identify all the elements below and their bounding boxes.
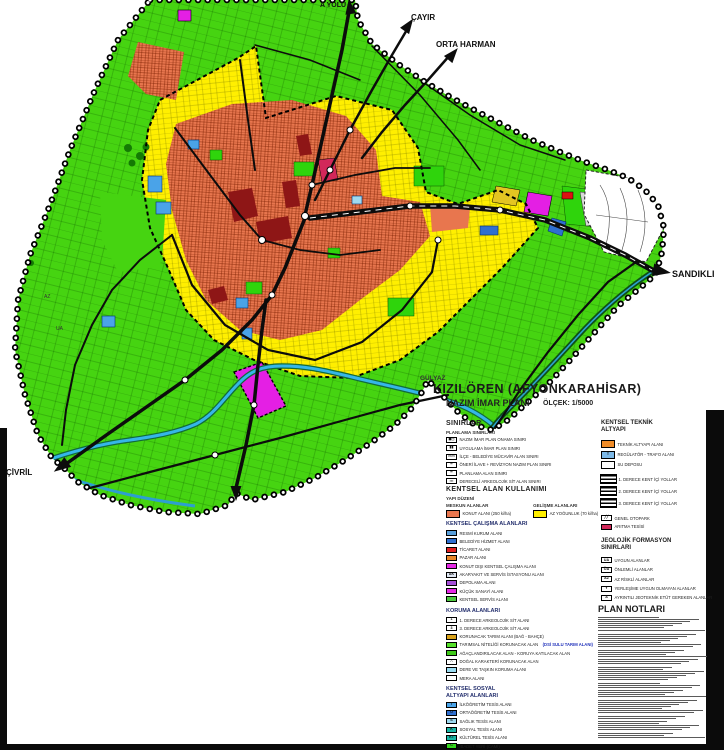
legend-swatch — [446, 667, 457, 673]
legend-section-sosyal: KENTSEL SOSYAL ALTYAPI ALANLARI İ İLKÖĞR… — [446, 686, 596, 750]
legend-label: SAĞLIK TESİS ALANI — [460, 719, 501, 724]
plan-note-line — [598, 737, 705, 738]
legend-item: RESMİ KURUM ALANI — [446, 530, 596, 536]
legend-swatch: UA — [601, 557, 612, 563]
page-subtitle: NAZIM İMAR PLANI — [446, 398, 530, 408]
plan-note-line — [598, 725, 699, 726]
legend-item: ┅ ÖNERİ İLAVE + REVİZYON NAZIM PLAN SINI… — [446, 462, 596, 468]
legend-swatch: ÖA — [601, 567, 612, 573]
legend-swatch: ◼◻ — [446, 437, 457, 443]
plan-note-line — [598, 704, 679, 705]
plan-note-line — [598, 716, 685, 717]
label-gulyaz: GÜLYAZ — [420, 373, 446, 382]
legend-item: S SAĞLIK TESİS ALANI — [446, 718, 596, 724]
legend-label: AZ RİSKLİ ALANLAR — [615, 577, 655, 582]
plan-note-line — [598, 634, 696, 635]
legend-label: ÖNERİ İLAVE + REVİZYON NAZIM PLAN SINIRI — [460, 462, 552, 467]
legend-item: ARITMA TESİSİ — [601, 524, 705, 530]
section-title: KENTSEL TEKNİK — [601, 420, 705, 427]
legend-items: İ İLKÖĞRETİM TESİS ALANI O ORTAÖĞRETİM T… — [446, 702, 596, 749]
legend-swatch — [446, 555, 457, 561]
plan-note-line — [598, 696, 706, 697]
legend-swatch — [446, 547, 457, 553]
legend-swatch: ▮▮ — [446, 445, 457, 451]
legend-label: SU DEPOSU — [618, 462, 643, 467]
legend-items: ◼◻ NAZIM İMAR PLAN ONAMA SINIRI ▮▮ UYGUL… — [446, 437, 596, 484]
legend-items: RESMİ KURUM ALANI BELEDİYE HİZMET ALANI … — [446, 530, 596, 602]
legend-swatch: ┅ — [446, 462, 457, 468]
legend-item: 1. DERECE KENT İÇİ YOLLAR — [601, 475, 705, 483]
label-geo-az: AZ — [44, 294, 50, 300]
legend-item: Y YERLEŞİME UYGUN OLMAYAN ALANLAR — [601, 586, 705, 592]
plan-note-line — [598, 659, 698, 660]
plan-note-line — [598, 694, 665, 695]
legend-label: AZ YOĞUNLUK (70 ki/ha) — [550, 511, 599, 516]
legend-section-koruma: KORUMA ALANLARI 1 1. DERECE ARKEOLOJİK S… — [446, 608, 596, 683]
legend-swatch: A — [601, 595, 612, 601]
legend-section-sinirlar: SINIRLAR PLANLAMA SINIRLARI ◼◻ NAZIM İMA… — [446, 420, 596, 487]
section-title: KENTSEL ÇALIŞMA ALANLARI — [446, 521, 596, 528]
label-cayir: ÇAYIR — [411, 13, 435, 22]
legend-item: PAZAR ALANI — [446, 555, 596, 561]
legend-item: T REGÜLATÖR - TRAFO ALANI — [601, 451, 705, 459]
legend-item: İ İLKÖĞRETİM TESİS ALANI — [446, 702, 596, 708]
section-title-2: ALTYAPI — [601, 427, 705, 434]
legend-label: KONUT ALANI (250 ki/ha) — [463, 511, 512, 516]
plan-note-line — [598, 642, 661, 643]
legend-label: YERLEŞİME UYGUN OLMAYAN ALANLAR — [615, 586, 696, 591]
plan-note-line — [598, 640, 670, 641]
legend-item: 3. DERECE KENT İÇİ YOLLAR — [601, 499, 705, 507]
label-orta-harman: ORTA HARMAN — [436, 40, 496, 49]
plan-note-line — [598, 650, 684, 651]
plan-note-line — [598, 654, 666, 655]
legend-item: MERA ALANI — [446, 675, 596, 681]
legend-label: İLKÖĞRETİM TESİS ALANI — [460, 702, 512, 707]
legend-item: KENTSEL SERVİS ALANI — [446, 596, 596, 602]
plan-note-line — [598, 677, 677, 678]
plan-note-line — [598, 692, 674, 693]
legend-label: BELEDİYE HİZMET ALANI — [460, 539, 510, 544]
legend-label: DERE VE TAŞKIN KORUMA ALANI — [460, 667, 527, 672]
legend-item: KÜÇÜK SANAYİ ALANI — [446, 588, 596, 594]
legend-item: AĞAÇLANDIRILACAK ALAN - KORUYA KATILACAK… — [446, 650, 596, 656]
frame-left — [0, 428, 7, 750]
legend-swatch — [446, 642, 457, 648]
legend-item: DEPOLAMA ALANI — [446, 580, 596, 586]
legend-label: TİCARET ALANI — [460, 547, 491, 552]
legend-item: UA UYGUN ALANLAR — [601, 557, 705, 563]
plan-note-line — [598, 679, 668, 680]
legend-swatch: 3 — [446, 625, 457, 631]
legend-label: İBADET YERİ (CAMİ) — [460, 744, 500, 749]
plan-note-line — [598, 675, 686, 676]
legend-swatch — [601, 461, 615, 469]
plan-note-line — [598, 667, 672, 668]
legend-label: TEKNİK ALTYAPI ALANI — [618, 442, 664, 447]
legend-swatch: İ — [446, 702, 457, 708]
legend-label: KÜLTÜREL TESİS ALANI — [460, 735, 508, 740]
scale-label: ÖLÇEK: 1/5000 — [543, 400, 593, 407]
legend-items: ╱╱ GENEL OTOPARK ARITMA TESİSİ — [601, 515, 705, 529]
legend-swatch: 1 — [446, 617, 457, 623]
legend-label: PAZAR ALANI — [460, 555, 487, 560]
plan-note-line — [598, 710, 703, 711]
road-legend-items: 1. DERECE KENT İÇİ YOLLAR 2. DERECE KENT… — [601, 475, 705, 507]
section-title: KENTSEL ALAN KULLANIMI — [446, 486, 596, 494]
plan-note-line — [598, 690, 683, 691]
legend-swatch — [446, 588, 457, 594]
legend-item: TEKNİK ALTYAPI ALANI — [601, 440, 705, 448]
legend-swatch — [601, 440, 615, 448]
plan-note-line — [598, 683, 660, 684]
legend-swatch — [446, 675, 457, 681]
plan-note-line — [598, 621, 690, 622]
legend-label: KONUT DIŞI KENTSEL ÇALIŞMA ALANI — [460, 564, 536, 569]
plan-note-line — [598, 708, 662, 709]
section-title: SINIRLAR — [446, 420, 596, 428]
legend-items: 1 1. DERECE ARKEOLOJİK SİT ALANI 3 3. DE… — [446, 617, 596, 681]
legend-item: KORUNACAK TARIM ALANI (BAĞ - BAHÇE) — [446, 634, 596, 640]
legend-swatch: ━ — [446, 470, 457, 476]
legend-label: UYGUN ALANLAR — [615, 558, 650, 563]
legend-swatch: ▭▭ — [446, 454, 457, 460]
legend-item: ÖA ÖNLEMLİ ALANLAR — [601, 567, 705, 573]
legend-section-jeolojik: JEOLOJİK FORMASYON SINIRLARI UA UYGUN AL… — [601, 538, 705, 604]
legend-swatch: K — [446, 727, 457, 733]
section-title: PLAN NOTLARI — [598, 604, 708, 614]
legend-swatch — [601, 524, 612, 530]
legend-swatch: AZ — [601, 576, 612, 582]
meskun-header: MESKUN ALANLAR — [446, 503, 511, 508]
plan-note-line — [598, 727, 690, 728]
plan-note-line — [598, 712, 694, 713]
legend-swatch: ▪▪▪ — [446, 478, 457, 484]
label-top-road: A YOLU — [320, 2, 346, 9]
legend-swatch — [446, 634, 457, 640]
legend-item: ━ PLANLAMA ALAN SINIRI — [446, 470, 596, 476]
legend-item: O ORTAÖĞRETİM TESİS ALANI — [446, 710, 596, 716]
legend-item: 3 3. DERECE ARKEOLOJİK SİT ALANI — [446, 625, 596, 631]
plan-note-line — [598, 669, 663, 670]
gelisme-header: GELİŞME ALANLARI — [533, 503, 598, 508]
legend-item: AZ AZ RİSKLİ ALANLAR — [601, 576, 705, 582]
road-class-icon — [601, 487, 616, 495]
plan-note-line — [598, 687, 692, 688]
plan-note-line — [598, 619, 699, 620]
legend-label: GENEL OTOPARK — [615, 516, 650, 521]
legend-swatch: T — [601, 451, 615, 459]
zoning-map-sheet: A YOLU ÇAYIR ORTA HARMAN SANDIKLI ÇİVRİL… — [0, 0, 724, 750]
legend-swatch — [533, 510, 547, 518]
plan-note-line — [598, 644, 701, 645]
label-civril: ÇİVRİL — [6, 468, 32, 477]
legend-label: 3. DERECE KENT İÇİ YOLLAR — [619, 501, 678, 506]
legend-swatch: KT — [446, 735, 457, 741]
legend-item: ▪▪▪ DERECELİ ARKEOLOJİK SİT ALAN SINIRI — [446, 478, 596, 484]
legend-item: C İBADET YERİ (CAMİ) — [446, 743, 596, 749]
plan-note-line — [598, 733, 673, 734]
legend-label: REGÜLATÖR - TRAFO ALANI — [618, 452, 675, 457]
plan-note-line — [598, 718, 676, 719]
plan-note-line — [598, 656, 707, 657]
legend-item: AK AKARYAKIT VE SERVİS İSTASYONU ALANI — [446, 572, 596, 578]
legend-swatch: Y — [601, 586, 612, 592]
plan-note-line — [598, 625, 673, 626]
legend-section-plan-notlari: PLAN NOTLARI — [598, 604, 708, 739]
plan-note-line — [598, 706, 671, 707]
road-class-icon — [601, 499, 616, 507]
legend-swatch: AK — [446, 572, 457, 578]
frame-right — [706, 410, 724, 750]
plan-note-line — [598, 617, 659, 618]
legend-section-calisma: KENTSEL ÇALIŞMA ALANLARI RESMİ KURUM ALA… — [446, 521, 596, 605]
legend-label: MERA ALANI — [460, 676, 485, 681]
legend-swatch — [446, 538, 457, 544]
legend-swatch: O — [446, 710, 457, 716]
plan-note-line — [598, 723, 659, 724]
legend-swatch: ∴ — [446, 659, 457, 665]
legend-swatch: S — [446, 718, 457, 724]
legend-label: AĞAÇLANDIRILACAK ALAN - KORUYA KATILACAK… — [460, 651, 571, 656]
legend-label: PLANLAMA ALAN SINIRI — [460, 471, 507, 476]
legend-label: 1. DERECE ARKEOLOJİK SİT ALANI — [460, 618, 530, 623]
section-title-2: SINIRLARI — [601, 545, 705, 552]
legend-label: İLÇE - BELEDİYE MÜCAVİR ALAN SINIRI — [460, 454, 539, 459]
legend-label: ORTAÖĞRETİM TESİS ALANI — [460, 710, 517, 715]
legend-label: DERECELİ ARKEOLOJİK SİT ALAN SINIRI — [460, 479, 541, 484]
legend-swatch — [446, 563, 457, 569]
legend-label: KÜÇÜK SANAYİ ALANI — [460, 589, 504, 594]
section-title: JEOLOJİK FORMASYON — [601, 538, 705, 545]
legend-swatch — [446, 530, 457, 536]
plan-note-line — [598, 700, 697, 701]
legend-label: KORUNACAK TARIM ALANI (BAĞ - BAHÇE) — [460, 634, 544, 639]
plan-note-line — [598, 638, 678, 639]
frame-bottom — [0, 744, 724, 750]
legend-label: NAZIM İMAR PLAN ONAMA SINIRI — [460, 437, 527, 442]
legend-item: ╱╱ GENEL OTOPARK — [601, 515, 705, 521]
legend-item: ▭▭ İLÇE - BELEDİYE MÜCAVİR ALAN SINIRI — [446, 454, 596, 460]
section-title: KORUMA ALANLARI — [446, 608, 596, 615]
legend-label: ÖNLEMLİ ALANLAR — [615, 567, 653, 572]
legend-label: RESMİ KURUM ALANI — [460, 531, 503, 536]
legend-label: SOSYAL TESİS ALANI — [460, 727, 503, 732]
plan-note-line — [598, 735, 664, 736]
page-title: KIZILÖREN (AFYONKARAHİSAR) — [433, 382, 641, 396]
legend-item: KT KÜLTÜREL TESİS ALANI — [446, 735, 596, 741]
plan-note-line — [598, 630, 705, 631]
legend-swatch — [446, 580, 457, 586]
legend-item: ◼◻ NAZIM İMAR PLAN ONAMA SINIRI — [446, 437, 596, 443]
legend-item: SU DEPOSU — [601, 461, 705, 469]
legend-swatch — [446, 596, 457, 602]
plan-note-line — [598, 661, 689, 662]
legend-item: ▮▮ UYGULAMA İMAR PLAN SINIRI — [446, 445, 596, 451]
legend-label: AYRINTILI JEOTEKNİK ETÜT GEREKEN ALANLAR — [615, 595, 713, 600]
plan-note-line — [598, 623, 682, 624]
legend-swatch — [446, 650, 457, 656]
legend-label: AKARYAKIT VE SERVİS İSTASYONU ALANI — [460, 572, 544, 577]
plan-notes-text-lines — [598, 617, 708, 738]
plan-note-line — [598, 702, 688, 703]
road-class-icon — [601, 475, 616, 483]
legend-item: K SOSYAL TESİS ALANI — [446, 727, 596, 733]
plan-note-line — [598, 627, 664, 628]
legend-item: ∴ DOĞAL KARAKTERİ KORUNACAK ALAN — [446, 659, 596, 665]
legend-label: TARIMSAL NİTELİĞİ KORUNACAK ALAN — [460, 642, 539, 647]
plan-note-line — [598, 729, 682, 730]
section-title-2: ALTYAPI ALANLARI — [446, 693, 596, 700]
plan-note-line — [598, 652, 675, 653]
legend-label: UYGULAMA İMAR PLAN SINIRI — [460, 446, 521, 451]
legend-section-teknik: KENTSEL TEKNİK ALTYAPI TEKNİK ALTYAPI AL… — [601, 420, 705, 532]
legend-label: ARITMA TESİSİ — [615, 524, 645, 529]
plan-note-line — [598, 685, 700, 686]
legend-item: DERE VE TAŞKIN KORUMA ALANI — [446, 667, 596, 673]
legend-swatch: C — [446, 743, 457, 749]
legend-label: 2. DERECE KENT İÇİ YOLLAR — [619, 489, 678, 494]
label-geo-ua: UA — [56, 326, 64, 332]
section-subtitle: PLANLAMA SINIRLARI — [446, 430, 596, 435]
label-sandikli: SANDIKLI — [672, 269, 715, 279]
legend-label: 3. DERECE ARKEOLOJİK SİT ALANI — [460, 626, 530, 631]
section-subtitle: YAPI DÜZENİ — [446, 496, 596, 501]
legend-item: TİCARET ALANI — [446, 547, 596, 553]
legend-item: 2. DERECE KENT İÇİ YOLLAR — [601, 487, 705, 495]
legend-items: UA UYGUN ALANLAR ÖA ÖNLEMLİ ALANLAR AZ A… — [601, 557, 705, 601]
plan-note-line — [598, 663, 681, 664]
legend-swatch: ╱╱ — [601, 515, 612, 521]
section-title: KENTSEL SOSYAL — [446, 686, 596, 693]
legend-section-alan-kullanimi: KENTSEL ALAN KULLANIMI YAPI DÜZENİ MESKU… — [446, 486, 596, 520]
legend-item: AZ YOĞUNLUK (70 ki/ha) — [533, 510, 598, 518]
plan-note-line — [598, 646, 693, 647]
plan-note-line — [598, 721, 667, 722]
legend-label-extra: (DSİ SULU TARIM ALANI) — [543, 642, 593, 647]
legend-item: 1 1. DERECE ARKEOLOJİK SİT ALANI — [446, 617, 596, 623]
legend-label: KENTSEL SERVİS ALANI — [460, 597, 508, 602]
plan-note-line — [598, 671, 704, 672]
legend-swatch — [446, 510, 460, 518]
plan-note-line — [598, 673, 695, 674]
legend-item: KONUT ALANI (250 ki/ha) — [446, 510, 511, 518]
legend-item: BELEDİYE HİZMET ALANI — [446, 538, 596, 544]
legend-label: DEPOLAMA ALANI — [460, 580, 496, 585]
legend-item: TARIMSAL NİTELİĞİ KORUNACAK ALAN (DSİ SU… — [446, 642, 596, 648]
legend-label: 1. DERECE KENT İÇİ YOLLAR — [619, 477, 678, 482]
legend-item: KONUT DIŞI KENTSEL ÇALIŞMA ALANI — [446, 563, 596, 569]
plan-note-line — [598, 636, 687, 637]
legend-item: A AYRINTILI JEOTEKNİK ETÜT GEREKEN ALANL… — [601, 595, 705, 601]
legend-items: TEKNİK ALTYAPI ALANI T REGÜLATÖR - TRAFO… — [601, 440, 705, 469]
legend-label: DOĞAL KARAKTERİ KORUNACAK ALAN — [460, 659, 539, 664]
